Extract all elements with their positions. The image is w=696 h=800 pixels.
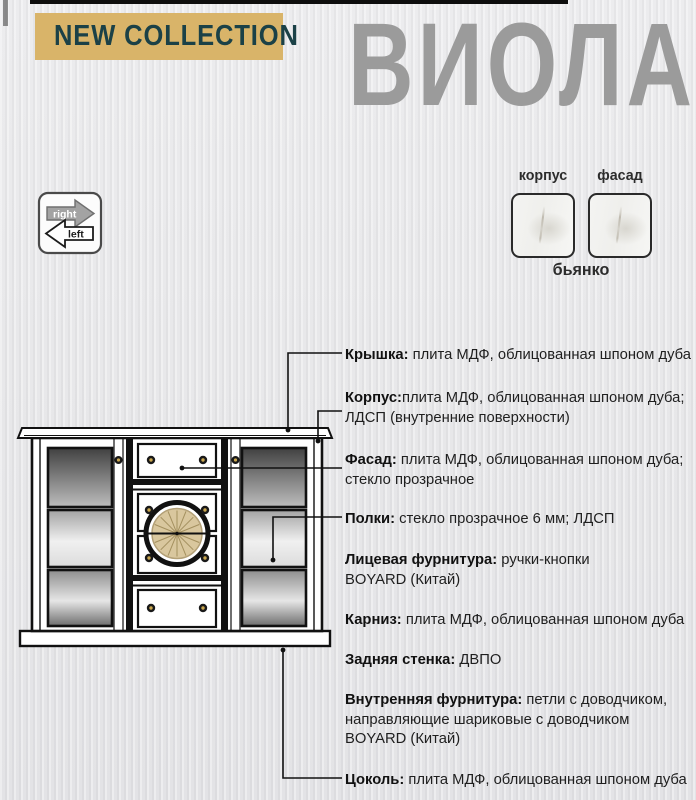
- spec-text: ручки-кнопки: [497, 551, 589, 568]
- spec-item-polki: Полки: стекло прозрачное 6 мм; ЛДСП: [345, 509, 692, 529]
- spec-label: Карниз:: [345, 611, 402, 628]
- spec-text: плита МДФ, облицованная шпоном дуба: [404, 771, 687, 788]
- knob: [199, 604, 207, 612]
- new-collection-label: NEW COLLECTION: [54, 20, 299, 53]
- knob: [201, 554, 209, 562]
- spec-label: Полки:: [345, 510, 395, 527]
- top-board: [18, 428, 332, 438]
- spec-label: Задняя стенка:: [345, 651, 455, 668]
- door-knob: [232, 456, 240, 464]
- medallion: [146, 503, 208, 565]
- door-knob: [115, 456, 123, 464]
- spec-text: BOYARD (Китай): [345, 570, 692, 590]
- spec-text: ДВПО: [455, 651, 501, 668]
- spec-item-kryshka: Крышка: плита МДФ, облицованная шпоном д…: [345, 345, 692, 365]
- right-glass-door: [242, 448, 306, 626]
- spec-text: стекло прозрачное: [345, 470, 692, 490]
- spec-item-litsevaya-furnitura: Лицевая фурнитура: ручки-кнопки BOYARD (…: [345, 550, 692, 589]
- left-arrow-label: left: [68, 229, 84, 241]
- orientation-icon: right left: [37, 191, 103, 255]
- spec-item-korpus: Корпус:плита МДФ, облицованная шпоном ду…: [345, 388, 692, 427]
- spec-text: плита МДФ, облицованная шпоном дуба: [409, 346, 692, 363]
- knob: [145, 554, 153, 562]
- spec-text: петли с доводчиком,: [522, 691, 667, 708]
- spec-item-tsokol: Цоколь: плита МДФ, облицованная шпоном д…: [345, 770, 692, 790]
- spec-text: BOYARD (Китай): [345, 729, 692, 749]
- knob: [199, 456, 207, 464]
- swatch-label-fasad: фасад: [591, 167, 650, 184]
- new-collection-badge: NEW COLLECTION: [35, 13, 283, 60]
- spec-label: Крышка:: [345, 346, 409, 363]
- spec-label: Внутренняя фурнитура:: [345, 691, 522, 708]
- leader-tsokol: [283, 650, 342, 778]
- knob: [147, 456, 155, 464]
- knob: [145, 506, 153, 514]
- page-edge-mark: [3, 0, 8, 26]
- wood-vein: [538, 206, 545, 244]
- spec-text: плита МДФ, облицованная шпоном дуба: [402, 611, 685, 628]
- spec-item-vnutrennyaya-furnitura: Внутренняя фурнитура: петли с доводчиком…: [345, 690, 692, 749]
- spec-text: ЛДСП (внутренние поверхности): [345, 408, 692, 428]
- swatch-label-korpus: корпус: [514, 167, 573, 184]
- spec-item-fasad: Фасад: плита МДФ, облицованная шпоном ду…: [345, 450, 692, 489]
- right-arrow-label: right: [53, 209, 77, 221]
- wood-vein: [615, 206, 622, 244]
- spec-item-karniz: Карниз: плита МДФ, облицованная шпоном д…: [345, 610, 692, 630]
- center-right-stile: [221, 438, 228, 631]
- spec-text: плита МДФ, облицованная шпоном дуба;: [397, 451, 684, 468]
- swatch-fasad: [588, 193, 652, 258]
- spec-item-zadnyaya-stenka: Задняя стенка: ДВПО: [345, 650, 692, 670]
- finish-name: бьянко: [515, 260, 646, 280]
- plinth: [20, 631, 330, 646]
- spec-text: направляющие шариковые с доводчиком: [345, 710, 692, 730]
- spec-text: стекло прозрачное 6 мм; ЛДСП: [395, 510, 614, 527]
- spec-label: Фасад:: [345, 451, 397, 468]
- catalog-page: NEW COLLECTION ВИОЛА right left корпус ф…: [0, 0, 696, 800]
- left-glass-door: [48, 448, 112, 626]
- swatch-korpus: [511, 193, 575, 258]
- spec-label: Лицевая фурнитура:: [345, 551, 497, 568]
- collection-title: ВИОЛА: [348, 6, 696, 124]
- spec-label: Корпус:: [345, 389, 402, 406]
- spec-label: Цоколь:: [345, 771, 404, 788]
- knob: [147, 604, 155, 612]
- center-left-stile: [126, 438, 133, 631]
- knob: [201, 506, 209, 514]
- cabinet-drawing: [10, 415, 340, 660]
- spec-text: плита МДФ, облицованная шпоном дуба;: [402, 389, 685, 406]
